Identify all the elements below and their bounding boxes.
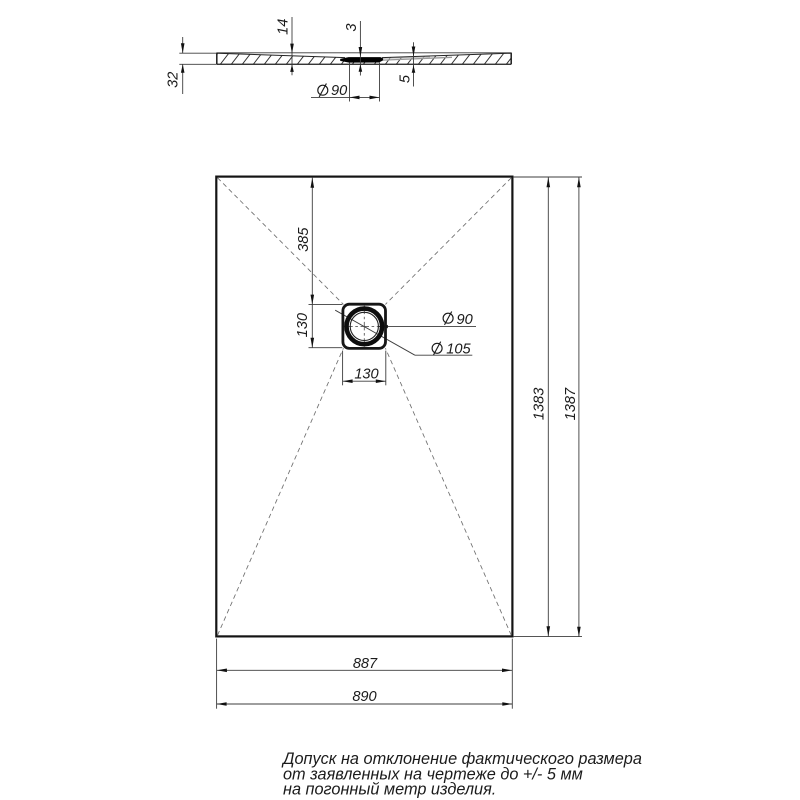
svg-text:90: 90 <box>331 83 347 99</box>
svg-text:1387: 1387 <box>563 387 579 420</box>
svg-text:130: 130 <box>295 313 311 337</box>
svg-text:385: 385 <box>296 227 312 252</box>
svg-text:130: 130 <box>354 366 378 382</box>
svg-text:14: 14 <box>275 19 291 35</box>
svg-text:1383: 1383 <box>532 388 548 420</box>
svg-text:890: 890 <box>352 689 376 705</box>
svg-text:105: 105 <box>446 342 471 358</box>
svg-text:5: 5 <box>398 74 414 83</box>
svg-text:90: 90 <box>457 312 473 328</box>
svg-text:887: 887 <box>353 656 378 672</box>
svg-text:на погонный метр изделия.: на погонный метр изделия. <box>283 781 496 799</box>
svg-text:3: 3 <box>344 23 360 31</box>
svg-text:32: 32 <box>166 72 182 88</box>
